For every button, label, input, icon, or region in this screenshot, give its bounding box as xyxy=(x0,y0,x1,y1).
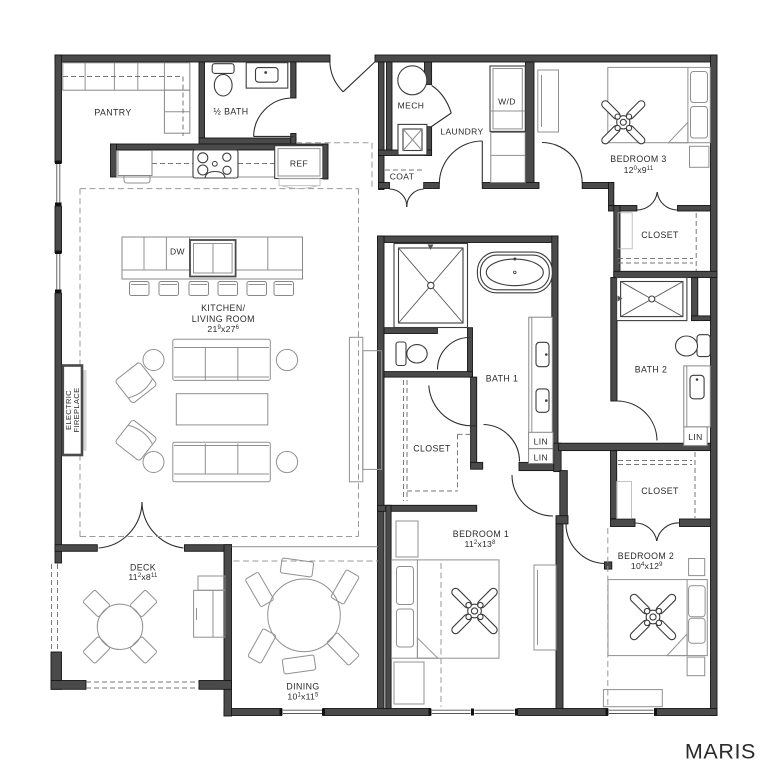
svg-text:BEDROOM 3: BEDROOM 3 xyxy=(610,154,666,164)
svg-text:½ BATH: ½ BATH xyxy=(214,107,249,117)
svg-text:BEDROOM 2: BEDROOM 2 xyxy=(618,551,674,561)
svg-text:KITCHEN/: KITCHEN/ xyxy=(201,303,245,313)
svg-text:CLOSET: CLOSET xyxy=(641,486,679,496)
svg-text:COAT: COAT xyxy=(390,172,415,182)
svg-text:101x115: 101x115 xyxy=(287,692,319,702)
svg-text:DECK: DECK xyxy=(130,563,156,573)
svg-text:DINING: DINING xyxy=(286,682,319,692)
svg-text:MARIS: MARIS xyxy=(685,740,756,764)
svg-text:FIREPLACE: FIREPLACE xyxy=(72,388,81,433)
svg-text:BATH 2: BATH 2 xyxy=(635,365,668,375)
svg-text:CLOSET: CLOSET xyxy=(641,230,679,240)
svg-text:W/D: W/D xyxy=(498,97,516,107)
svg-text:PANTRY: PANTRY xyxy=(94,108,131,118)
svg-text:BEDROOM 1: BEDROOM 1 xyxy=(453,529,509,539)
svg-text:LIN: LIN xyxy=(688,432,702,442)
svg-text:219x276: 219x276 xyxy=(207,324,239,334)
svg-text:LIN: LIN xyxy=(534,453,548,463)
svg-text:MECH: MECH xyxy=(398,101,425,111)
svg-text:LAUNDRY: LAUNDRY xyxy=(440,127,483,137)
svg-text:REF: REF xyxy=(290,159,308,169)
svg-text:LIN: LIN xyxy=(534,437,548,447)
svg-text:104x129: 104x129 xyxy=(631,561,663,571)
svg-text:112x138: 112x138 xyxy=(464,539,496,549)
svg-text:DW: DW xyxy=(170,247,185,257)
svg-text:LIVING ROOM: LIVING ROOM xyxy=(192,314,255,324)
svg-text:CLOSET: CLOSET xyxy=(413,444,451,454)
svg-text:BATH 1: BATH 1 xyxy=(486,374,519,384)
